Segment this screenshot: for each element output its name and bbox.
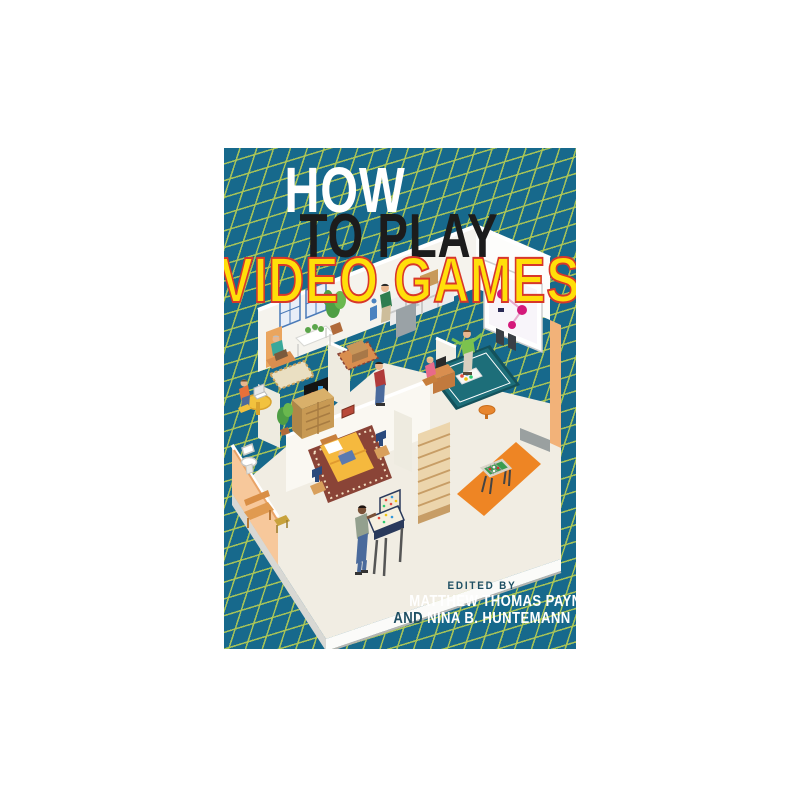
editor-name-2: AND NINA B. HUNTEMANN [393, 610, 570, 628]
person-office [238, 380, 251, 414]
title-line-3: VIDEO GAMES [224, 248, 576, 312]
editor-name-1: MATTHEW THOMAS PAYNE [409, 593, 576, 611]
right-exterior-wall [550, 320, 561, 448]
editor-2-name: NINA B. HUNTEMANN [427, 610, 571, 627]
book-cover: HOW TO PLAY VIDEO GAMES EDITED BY MATTHE… [224, 148, 576, 649]
edited-by-label: EDITED BY [447, 580, 516, 592]
and-label: AND [393, 610, 423, 627]
staircase [418, 422, 450, 524]
